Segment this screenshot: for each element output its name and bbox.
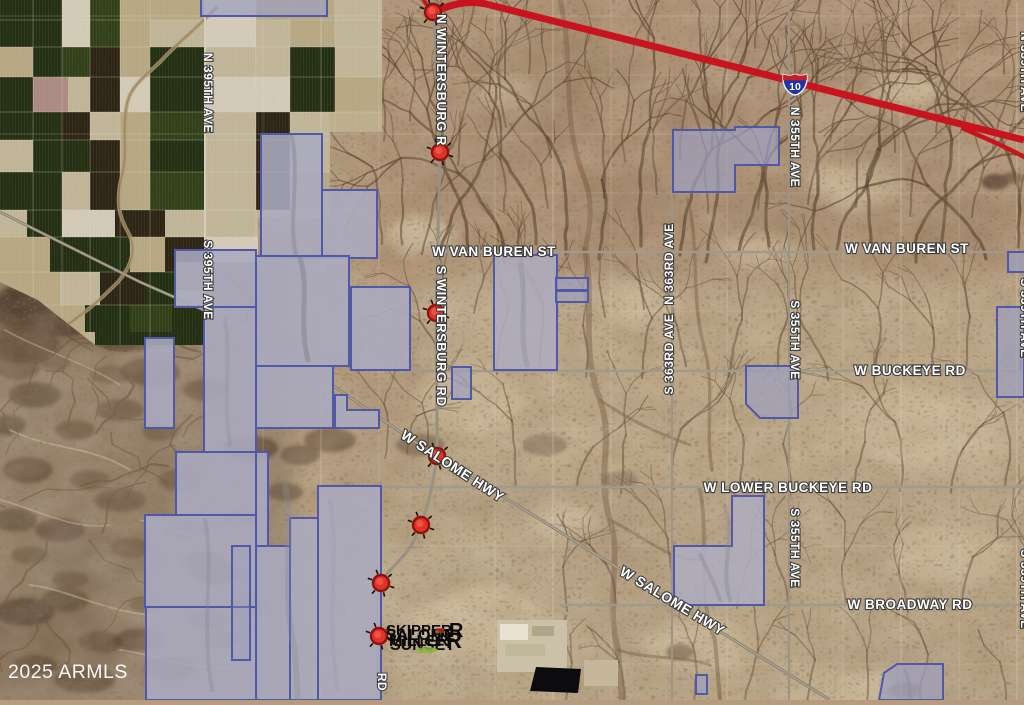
svg-text:2025 ARMLS: 2025 ARMLS [8,661,128,683]
svg-text:W BUCKEYE RD: W BUCKEYE RD [854,363,966,378]
svg-text:S 355TH AVE: S 355TH AVE [788,300,802,380]
svg-text:W LOWER BUCKEYE RD: W LOWER BUCKEYE RD [704,480,873,495]
svg-text:S 339TH AVE: S 339TH AVE [1018,549,1024,629]
svg-text:W BROADWAY RD: W BROADWAY RD [847,597,972,612]
svg-text:S 339TH AVE: S 339TH AVE [1018,278,1024,358]
svg-text:W VAN BUREN ST: W VAN BUREN ST [845,241,969,256]
svg-text:W VAN BUREN ST: W VAN BUREN ST [432,244,556,259]
svg-text:N 363RD AVE: N 363RD AVE [662,223,676,305]
svg-text:N 355TH AVE: N 355TH AVE [788,107,802,187]
svg-text:10: 10 [789,81,801,93]
svg-text:N 395TH AVE: N 395TH AVE [201,53,215,133]
svg-text:N 339TH AVE: N 339TH AVE [1018,32,1024,112]
svg-text:S 395TH AVE: S 395TH AVE [201,240,215,320]
svg-text:S 355TH AVE: S 355TH AVE [788,508,802,588]
svg-text:S 363RD AVE: S 363RD AVE [662,314,676,395]
svg-text:RD: RD [375,673,389,691]
svg-text:R: R [449,620,464,642]
svg-text:N WINTERSBURG R: N WINTERSBURG R [434,14,449,146]
svg-text:S WINTERSBURG RD: S WINTERSBURG RD [434,266,449,407]
